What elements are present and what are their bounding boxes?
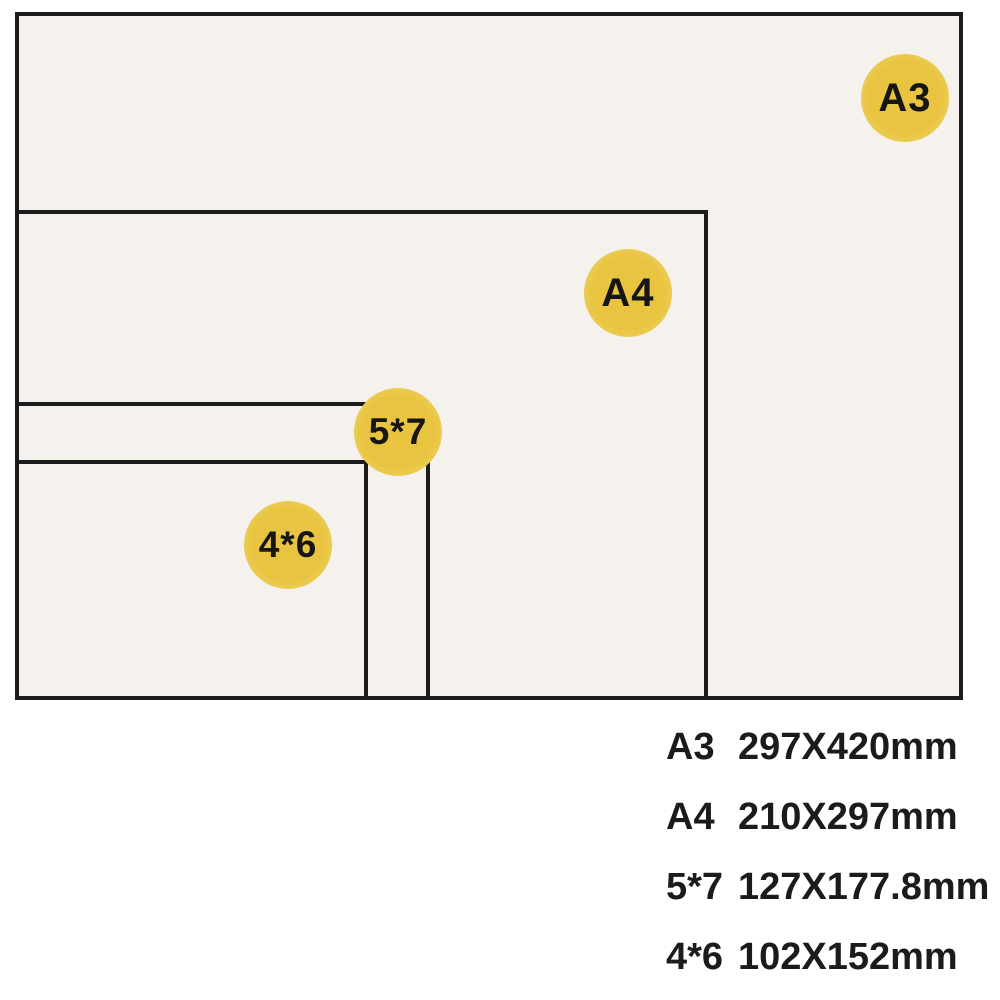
legend-size-label: A3 xyxy=(666,726,738,769)
badge-4x6: 4*6 xyxy=(244,501,332,589)
badge-a4-label: A4 xyxy=(601,271,654,316)
legend-item-a3: A3 297X420mm xyxy=(666,712,989,782)
paper-size-comparison-diagram: A3 A4 5*7 4*6 A3 297X420mm A4 210X297mm … xyxy=(0,0,1000,1000)
legend-size-label: 5*7 xyxy=(666,866,738,909)
legend-dimensions: 210X297mm xyxy=(738,796,958,839)
size-legend: A3 297X420mm A4 210X297mm 5*7 127X177.8m… xyxy=(666,712,989,992)
badge-a3: A3 xyxy=(861,54,949,142)
badge-5x7-label: 5*7 xyxy=(369,411,428,453)
badge-a3-label: A3 xyxy=(878,76,931,121)
legend-dimensions: 297X420mm xyxy=(738,726,958,769)
legend-dimensions: 102X152mm xyxy=(738,936,958,979)
badge-5x7: 5*7 xyxy=(354,388,442,476)
badge-4x6-label: 4*6 xyxy=(259,524,318,566)
legend-size-label: A4 xyxy=(666,796,738,839)
legend-size-label: 4*6 xyxy=(666,936,738,979)
legend-item-a4: A4 210X297mm xyxy=(666,782,989,852)
legend-item-5x7: 5*7 127X177.8mm xyxy=(666,852,989,922)
sheet-4x6 xyxy=(15,460,368,700)
legend-dimensions: 127X177.8mm xyxy=(738,866,989,909)
legend-item-4x6: 4*6 102X152mm xyxy=(666,922,989,992)
badge-a4: A4 xyxy=(584,249,672,337)
